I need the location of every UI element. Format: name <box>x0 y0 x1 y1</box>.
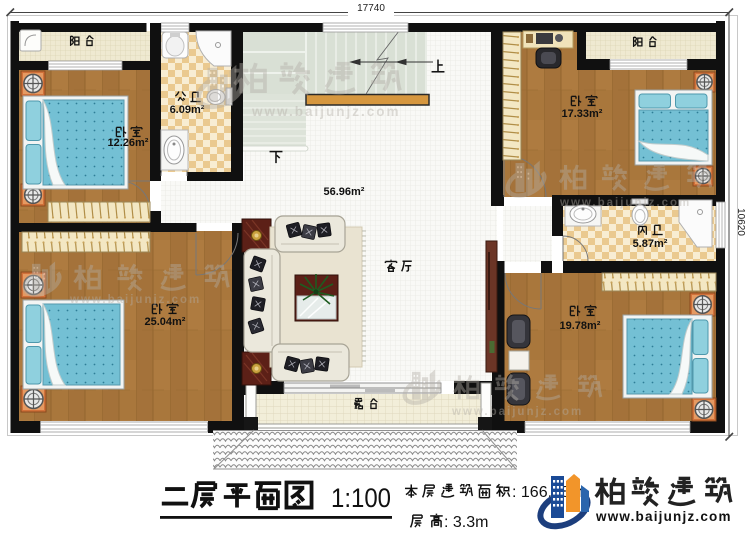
svg-text:19.78m²: 19.78m² <box>560 320 601 332</box>
svg-text:www.baijunjz.com: www.baijunjz.com <box>69 294 201 306</box>
svg-text:25.04m²: 25.04m² <box>145 316 186 328</box>
svg-text:56.96m²: 56.96m² <box>324 186 365 198</box>
svg-text:: 3.3m: : 3.3m <box>444 514 488 531</box>
svg-text:www.baijunjz.com: www.baijunjz.com <box>251 104 401 119</box>
svg-text:10620: 10620 <box>735 208 746 236</box>
svg-text:www.baijunjz.com: www.baijunjz.com <box>595 509 732 524</box>
svg-text:1:100: 1:100 <box>331 483 391 513</box>
svg-text:6.09m²: 6.09m² <box>170 104 205 116</box>
svg-text:12.26m²: 12.26m² <box>108 137 149 149</box>
svg-text:www.baijunjz.com: www.baijunjz.com <box>559 197 691 209</box>
svg-text:17.33m²: 17.33m² <box>562 108 603 120</box>
svg-text:17740: 17740 <box>357 3 385 14</box>
svg-text:5.87m²: 5.87m² <box>633 238 668 250</box>
svg-text:www.baijunjz.com: www.baijunjz.com <box>451 406 583 418</box>
